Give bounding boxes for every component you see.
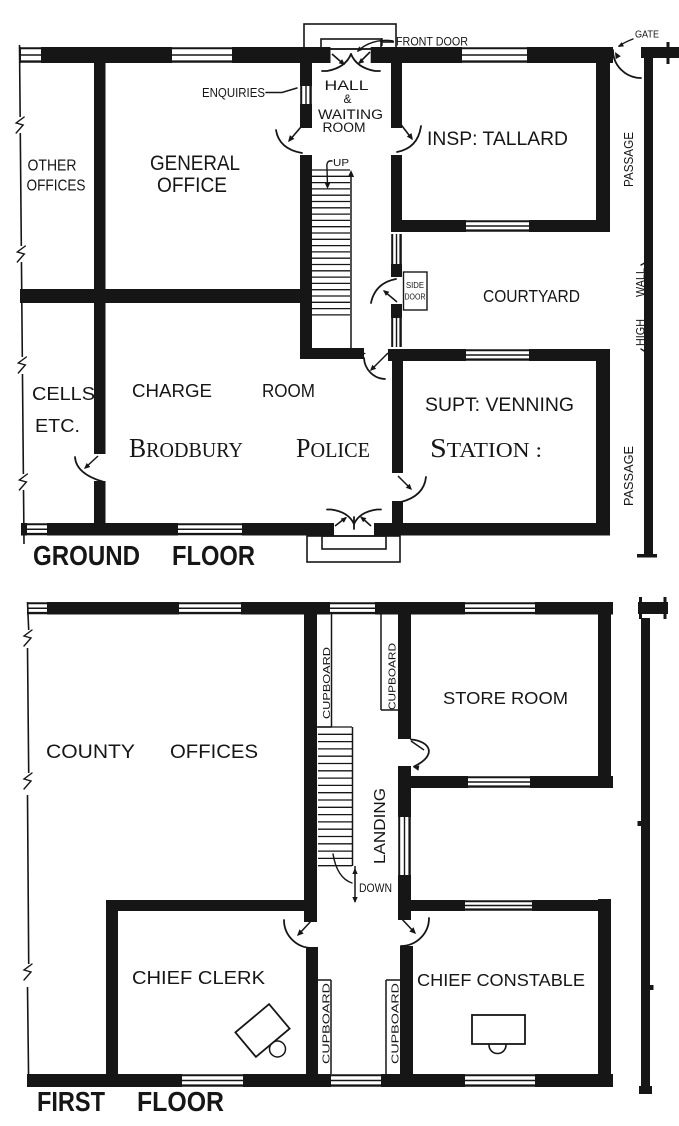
- svg-text:SUPT: VENNING: SUPT: VENNING: [425, 395, 574, 416]
- svg-text:FLOOR: FLOOR: [137, 1086, 224, 1117]
- svg-text:ROOM: ROOM: [323, 120, 366, 135]
- svg-text:GENERAL: GENERAL: [150, 152, 240, 175]
- svg-text:FRONT DOOR: FRONT DOOR: [396, 37, 468, 49]
- svg-text:OFFICES: OFFICES: [170, 742, 258, 763]
- svg-text:LANDING: LANDING: [372, 788, 389, 864]
- svg-text:CHARGE: CHARGE: [132, 381, 212, 401]
- svg-text:COURTYARD: COURTYARD: [483, 286, 580, 306]
- svg-text:PASSAGE: PASSAGE: [621, 132, 636, 187]
- svg-text:CUPBOARD: CUPBOARD: [390, 982, 402, 1064]
- svg-text:CUPBOARD: CUPBOARD: [388, 643, 399, 710]
- svg-text:FIRST: FIRST: [37, 1086, 105, 1117]
- svg-text:FLOOR: FLOOR: [172, 540, 255, 571]
- svg-text:CUPBOARD: CUPBOARD: [321, 982, 333, 1064]
- svg-text:UP: UP: [333, 157, 349, 169]
- svg-text:COUNTY: COUNTY: [46, 742, 135, 763]
- svg-text:PASSAGE: PASSAGE: [621, 446, 636, 506]
- svg-text:&: &: [343, 92, 351, 106]
- svg-text:HIGH: HIGH: [634, 319, 648, 346]
- svg-text:OTHER: OTHER: [28, 158, 77, 175]
- svg-text:INSP: TALLARD: INSP: TALLARD: [427, 129, 568, 150]
- svg-text:CUPBOARD: CUPBOARD: [322, 647, 333, 719]
- svg-text:POLICE: POLICE: [296, 433, 370, 463]
- svg-text:DOOR: DOOR: [405, 292, 426, 302]
- svg-text:OFFICES: OFFICES: [27, 178, 86, 195]
- svg-text:STATION :: STATION :: [430, 433, 542, 463]
- svg-text:CHIEF CONSTABLE: CHIEF CONSTABLE: [417, 970, 585, 990]
- svg-text:CELLS: CELLS: [32, 383, 95, 404]
- svg-text:GROUND: GROUND: [33, 540, 140, 571]
- svg-text:WALL: WALL: [634, 268, 648, 297]
- svg-text:BRODBURY: BRODBURY: [129, 433, 243, 463]
- svg-text:GATE: GATE: [635, 29, 659, 41]
- svg-text:OFFICE: OFFICE: [157, 174, 227, 197]
- svg-text:STORE ROOM: STORE ROOM: [443, 688, 568, 708]
- svg-text:CHIEF CLERK: CHIEF CLERK: [132, 968, 265, 988]
- svg-text:ENQUIRIES: ENQUIRIES: [202, 85, 265, 100]
- svg-text:ETC.: ETC.: [35, 416, 80, 436]
- svg-text:SIDE: SIDE: [406, 280, 424, 290]
- svg-text:DOWN: DOWN: [359, 883, 392, 895]
- svg-text:HALL: HALL: [325, 78, 370, 93]
- svg-text:ROOM: ROOM: [262, 381, 315, 401]
